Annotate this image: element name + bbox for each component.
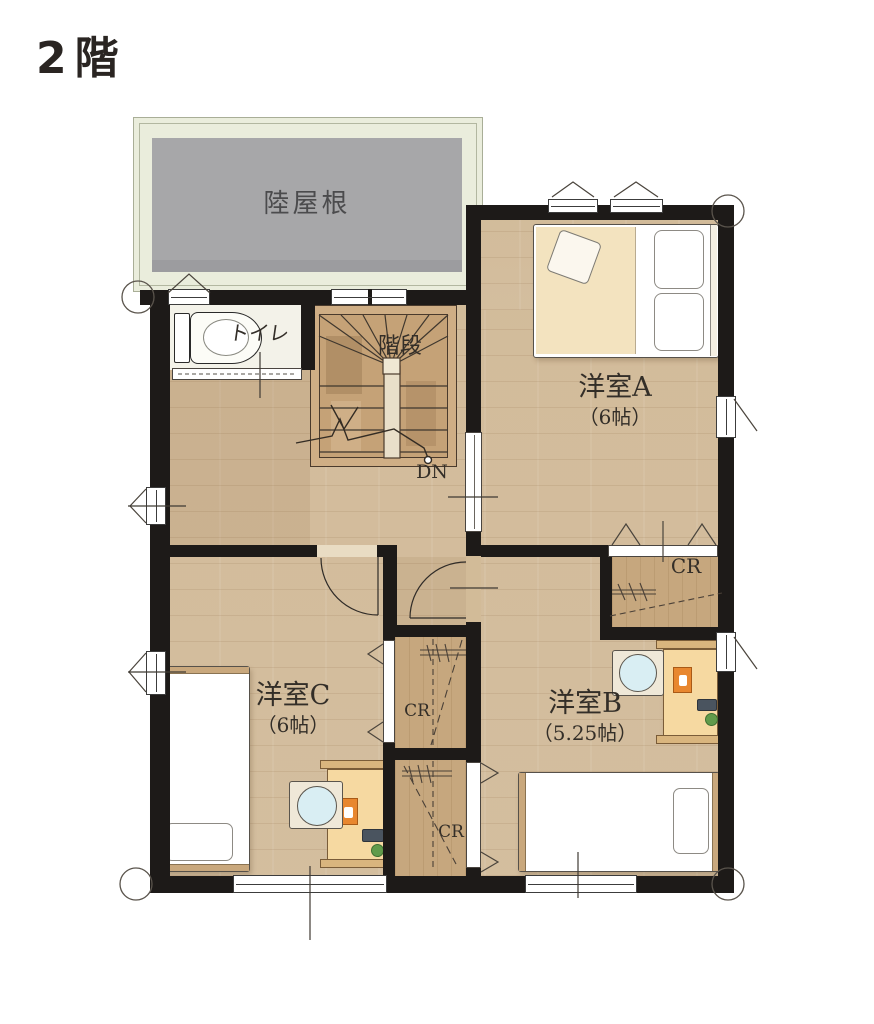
closet-center-upper-label: CR (393, 702, 441, 722)
page-title: 2階 (36, 22, 127, 86)
door-sliding-room-a (465, 432, 482, 532)
bed-b-frame-left (519, 773, 526, 871)
chair-room-c (289, 781, 343, 829)
closet-north-label: CR (662, 555, 710, 578)
stairs-label: 階段 (356, 334, 444, 359)
hall-floor-tint (166, 370, 310, 545)
room-b-size: （5.25帖） (495, 722, 675, 745)
bed-c-pillow (165, 823, 233, 861)
window-stairs-north (331, 289, 407, 305)
bed-a-pillow-1 (654, 230, 704, 289)
casement-mark-hall-west (130, 489, 146, 523)
bed-double-room-a (533, 224, 719, 358)
window-room-a-east (716, 396, 736, 438)
desk-b-laptop (697, 699, 717, 711)
desk-c-shelf-top (320, 760, 390, 769)
bed-a-pillow-2 (654, 293, 704, 351)
awning-mark-a1 (552, 182, 594, 197)
awning-mark-a2 (614, 182, 658, 197)
window-room-c-south (233, 875, 387, 893)
corridor-floor-tint (397, 557, 466, 625)
wall-closet-north-west (600, 557, 612, 627)
window-room-c-west (146, 651, 166, 695)
chair-b-seat (619, 654, 657, 692)
chair-c-seat (297, 786, 337, 826)
window-hall-west (146, 487, 166, 525)
desk-c-picture-icon (344, 807, 353, 818)
closet-center-upper-floor (395, 637, 466, 748)
flat-roof-label: 陸屋根 (152, 190, 462, 220)
desk-b-shelf-top (656, 640, 720, 649)
stairs-block (310, 305, 457, 467)
closet-center-lower-label: CR (427, 823, 475, 843)
desk-c-laptop (362, 829, 384, 842)
window-toilet-north (168, 289, 210, 305)
room-b-name: 洋室B (495, 688, 675, 719)
door-opening-room-b (466, 556, 481, 622)
casement-mark-c-west (129, 653, 146, 692)
wall-closet-north-south (600, 627, 734, 640)
stairs-light-patch (331, 401, 361, 451)
wall-west (150, 290, 170, 893)
room-a-name: 洋室A (525, 372, 705, 403)
closet-center-lower-floor (395, 760, 466, 876)
wall-room-c-east (383, 545, 397, 637)
desk-b-plant (705, 713, 718, 726)
door-closet-center-lower (466, 762, 481, 868)
window-stairs-mullion (368, 289, 372, 305)
wall-top-right (466, 205, 734, 220)
desk-c-shelf-bottom (320, 859, 390, 868)
window-room-a-north-2 (610, 199, 663, 213)
window-room-b-east (716, 632, 736, 672)
casement-mark-b-east (734, 637, 757, 669)
casement-mark-a-east (734, 399, 757, 431)
desk-b-picture-icon (679, 675, 687, 686)
window-room-b-south (525, 875, 637, 893)
corner-circle-bottom-left (120, 868, 152, 900)
room-a-size: （6帖） (525, 406, 705, 429)
door-opening-room-c (317, 545, 377, 557)
room-c-name: 洋室C (203, 680, 383, 711)
room-c-size: （6帖） (203, 714, 383, 737)
stairs-shade-patch (406, 381, 436, 446)
toilet-label: トイレ (212, 322, 305, 345)
stairs-down-label: DN (410, 462, 454, 484)
door-sliding-toilet (172, 368, 302, 380)
wall-closet-center-divider (383, 748, 480, 760)
floor-plan-page: 2階 陸屋根 トイレ 階段 DN CR CR CR 洋室A （6帖） 洋室B （… (0, 0, 874, 1024)
door-closet-center-upper (383, 640, 395, 743)
bed-single-room-b (518, 772, 720, 872)
wall-closet-center-north (383, 625, 480, 637)
bed-a-headboard (710, 225, 717, 356)
flat-roof-edge-shade (152, 260, 462, 272)
bed-b-pillow (673, 788, 709, 854)
toilet-tank (174, 313, 190, 363)
desk-b-picture (673, 667, 692, 693)
window-room-a-north-1 (548, 199, 598, 213)
